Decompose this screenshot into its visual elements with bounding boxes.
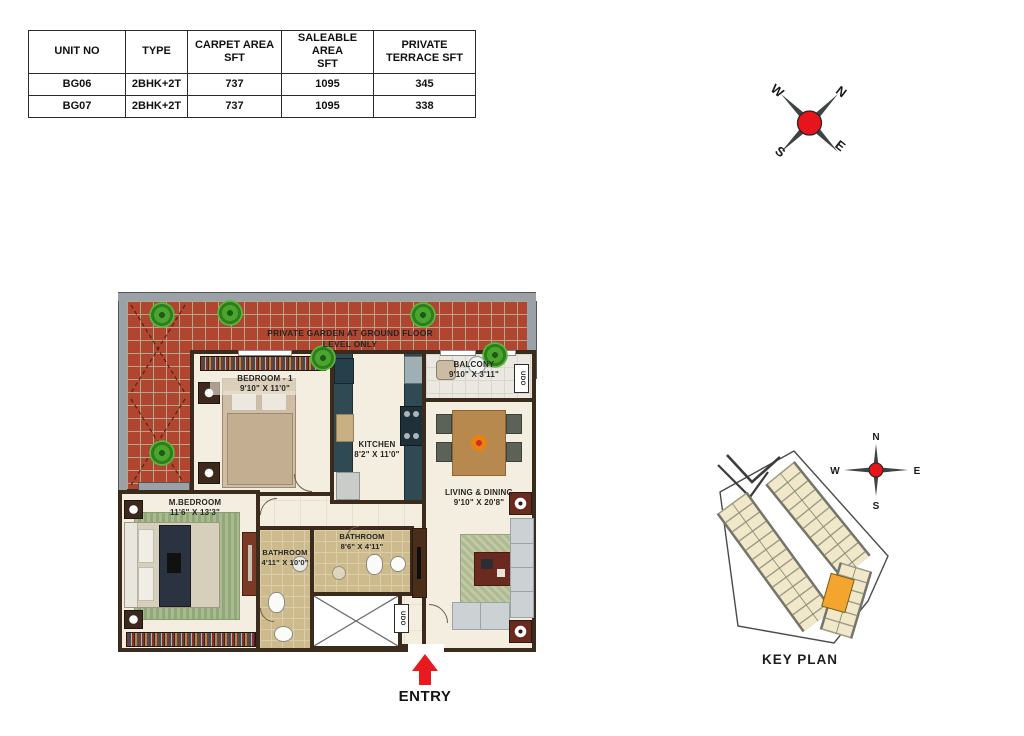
nightstand — [198, 462, 220, 484]
sofa — [510, 518, 534, 618]
plant-icon — [149, 302, 175, 328]
dining-table — [452, 410, 506, 476]
key-plan: N S W E — [688, 424, 950, 656]
living-dining-label: LIVING & DINING9'10" X 20'8" — [430, 488, 528, 509]
room-bathroom1 — [256, 526, 314, 652]
duct-label: UDO — [514, 364, 529, 393]
plant-icon — [410, 302, 436, 328]
room-bedroom1 — [190, 350, 334, 496]
kitchen-mat — [336, 414, 354, 442]
bed — [124, 522, 220, 608]
bathroom2-label: BATHROOM8'6" X 4'11" — [318, 532, 406, 552]
fridge — [336, 472, 360, 500]
window — [440, 350, 476, 356]
cell-carpet: 737 — [188, 73, 282, 95]
balcony-label: BALCONY9'10" X 3'11" — [436, 360, 512, 381]
cell-terrace: 345 — [374, 73, 476, 95]
compass-n-label: N — [872, 432, 879, 443]
entry-arrow-icon — [412, 654, 438, 671]
nightstand — [124, 610, 143, 629]
table-row: BG07 2BHK+2T 737 1095 338 — [29, 95, 476, 117]
floor-plan: PRIVATE GARDEN AT GROUND FLOORLEVEL ONLY… — [118, 292, 536, 652]
compass-s-label: S — [873, 501, 880, 512]
table-bowl — [471, 435, 487, 451]
table-row: BG06 2BHK+2T 737 1095 345 — [29, 73, 476, 95]
compass-e-label: E — [914, 466, 921, 477]
kitchen-label: KITCHEN8'2" X 11'0" — [331, 440, 423, 461]
kitchen-sink — [404, 356, 424, 384]
master-bedroom-label: M.BEDROOM11'6" X 13'3" — [140, 498, 250, 519]
compass-n-label: N — [833, 83, 850, 101]
cell-unit-no: BG06 — [29, 73, 126, 95]
cell-type: 2BHK+2T — [126, 95, 188, 117]
window — [238, 350, 292, 356]
cell-unit-no: BG07 — [29, 95, 126, 117]
header-carpet-area: CARPET AREASFT — [188, 31, 282, 74]
header-type: TYPE — [126, 31, 188, 74]
cell-type: 2BHK+2T — [126, 73, 188, 95]
dining-chair — [506, 442, 522, 462]
entry-opening — [408, 644, 444, 652]
garden-note: PRIVATE GARDEN AT GROUND FLOORLEVEL ONLY — [240, 328, 460, 350]
toilet — [366, 554, 383, 575]
key-plan-title: KEY PLAN — [740, 652, 860, 667]
cell-carpet: 737 — [188, 95, 282, 117]
wardrobe — [200, 356, 326, 371]
cell-saleable: 1095 — [282, 73, 374, 95]
table-header-row: UNIT NO TYPE CARPET AREASFT SALEABLE ARE… — [29, 31, 476, 74]
header-private-terrace: PRIVATETERRACE SFT — [374, 31, 476, 74]
dining-chair — [506, 414, 522, 434]
hob — [334, 358, 354, 384]
plant-icon — [217, 300, 243, 326]
sink — [274, 626, 293, 642]
unit-info-table: UNIT NO TYPE CARPET AREASFT SALEABLE ARE… — [28, 30, 476, 118]
key-plan-compass-icon: N S W E — [830, 432, 920, 512]
bathroom1-label: BATHROOM4'11" X 10'0" — [257, 548, 313, 568]
coffee-table — [474, 552, 514, 586]
duct-label: UDO — [394, 604, 409, 633]
tv-icon — [417, 547, 421, 579]
shaft — [310, 592, 402, 650]
cell-saleable: 1095 — [282, 95, 374, 117]
sofa — [452, 602, 510, 630]
floorplan-sheet: UNIT NO TYPE CARPET AREASFT SALEABLE ARE… — [0, 0, 1024, 736]
dining-chair — [436, 414, 452, 434]
dining-chair — [436, 442, 452, 462]
header-unit-no: UNIT NO — [29, 31, 126, 74]
compass-rose-icon: N W S E — [752, 76, 868, 176]
room-kitchen — [330, 350, 426, 504]
compass-s-label: S — [772, 143, 788, 160]
entry-arrow-icon — [419, 670, 431, 685]
corner-table — [509, 620, 532, 643]
plant-icon — [149, 440, 175, 466]
floor-drain — [332, 566, 346, 580]
bedroom1-label: BEDROOM - 19'10" X 11'0" — [210, 374, 320, 395]
tv-unit — [412, 528, 427, 598]
wardrobe — [126, 632, 256, 647]
cell-terrace: 338 — [374, 95, 476, 117]
entry-label: ENTRY — [391, 688, 459, 705]
sink — [390, 556, 406, 572]
header-saleable-area: SALEABLE AREASFT — [282, 31, 374, 74]
compass-e-label: E — [832, 137, 848, 154]
compass-w-label: W — [830, 466, 840, 477]
shaft-x-mark — [314, 596, 398, 646]
